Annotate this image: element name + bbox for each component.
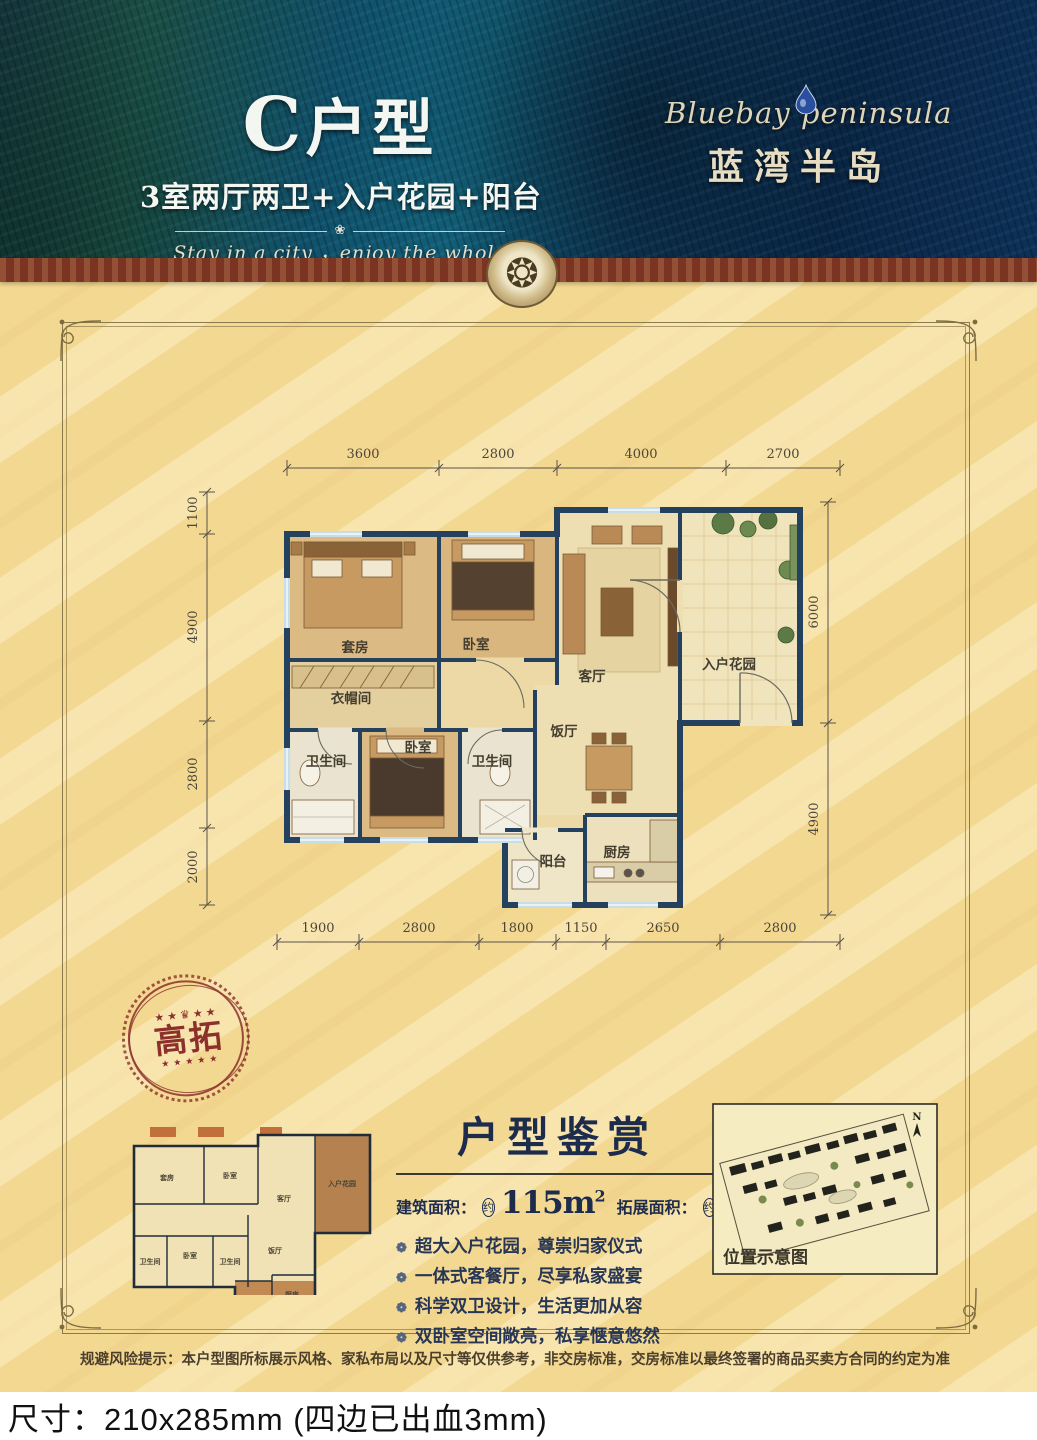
print-size-note: 尺寸：210x285mm (四边已出血3mm) [0,1394,548,1439]
room-label-suite: 套房 [342,639,369,656]
thumb-room-dining: 饭厅 [268,1246,282,1255]
location-map: N 位置示意图 [712,1103,938,1275]
bullet-flower-icon: ❁ [396,1241,407,1256]
corner-flourish-icon [934,315,982,363]
location-map-caption: 位置示意图 [723,1247,808,1268]
room-label-kitchen: 厨房 [604,844,631,861]
floor-plan-thumbnail: 套房 卧室 客厅 入户花园 饭厅 卫生间 卧室 卫生间 阳台 厨房 [82,1083,372,1295]
thumb-room-garden: 入户花园 [327,1179,356,1188]
dim-left-3: 2800 [186,757,201,790]
thumb-room-bedroom2: 卧室 [223,1171,237,1180]
section-title: 户型鉴赏 [396,1104,718,1165]
room-label-wardrobe: 衣帽间 [331,690,372,707]
dim-bottom-1: 1900 [301,921,334,936]
flower-ornament-icon: ❀ [335,226,346,236]
dim-right-1: 6000 [807,595,822,628]
feature-bullet-list: ❁超大入户花园，尊崇归家仪式 ❁一体式客餐厅，尽享私家盛宴 ❁科学双卫设计，生活… [396,1233,718,1353]
room-label-living: 客厅 [578,668,607,685]
build-area-label: 建筑面积： [396,1194,476,1218]
dim-bottom-3: 1800 [500,921,533,936]
room-label-bath2: 卫生间 [472,753,513,770]
thumb-room-living: 客厅 [276,1194,291,1203]
room-label-garden: 入户花园 [702,656,756,673]
thumb-room-suite: 套房 [160,1173,174,1182]
dim-left-4: 2000 [186,850,201,883]
dim-bottom-6: 2800 [763,921,796,936]
thumb-room-bath1: 卫生间 [140,1257,161,1266]
ext-area-label: 拓展面积： [617,1194,697,1218]
page-title: C户型 [140,78,540,168]
corner-flourish-icon [934,1286,982,1334]
section-divider [396,1173,718,1175]
build-area-value: 115m2 [501,1185,605,1221]
thumb-room-bedroom3: 卧室 [183,1251,197,1260]
feature-item: ❁超大入户花园，尊崇归家仪式 [396,1233,718,1263]
svg-text:N: N [912,1112,921,1123]
print-size-bar: 尺寸：210x285mm (四边已出血3mm) [0,1392,1037,1440]
dim-top-1: 3600 [346,447,379,462]
bullet-flower-icon: ❁ [396,1271,407,1286]
dim-bottom-2: 2800 [402,921,435,936]
feature-item: ❁一体式客餐厅，尽享私家盛宴 [396,1263,718,1293]
bullet-flower-icon: ❁ [396,1301,407,1316]
title-divider: ❀ [175,226,505,236]
unit-letter: C [243,82,306,168]
dim-right-2: 4900 [807,802,822,835]
unit-appreciation-section: 户型鉴赏 建筑面积：约115m2 拓展面积：约13m2 ❁超大入户花园，尊崇归家… [396,1104,718,1369]
medallion-ornament-icon: ❂ [486,240,558,308]
dim-bottom-5: 2650 [646,921,679,936]
room-label-bedroom3: 卧室 [405,739,432,756]
dim-top-3: 4000 [624,447,657,462]
dim-bottom-4: 1150 [564,921,597,936]
dim-left-1: 1100 [186,496,201,529]
brand-name-cn: 蓝湾半岛 [665,138,935,190]
room-label-bedroom2: 卧室 [463,636,490,653]
thumb-balcony-highlight [235,1281,315,1295]
room-label-bath1: 卫生间 [306,753,347,770]
dim-top-2: 2800 [481,447,514,462]
thumb-room-bath2: 卫生间 [220,1257,241,1266]
unit-subtitle: 3室两厅两卫+入户花园+阳台 [140,174,540,216]
feature-item: ❁科学双卫设计，生活更加从容 [396,1293,718,1323]
dim-left-2: 4900 [186,610,201,643]
room-label-dining: 饭厅 [550,723,579,740]
corner-flourish-icon [55,315,103,363]
floor-plan: 套房 衣帽间 卧室 客厅 入户花园 饭厅 卫生间 卧室 卫生间 阳台 厨房 36… [180,430,870,975]
risk-disclaimer: 规避风险提示：本户型图所标展示风格、家私布局以及尺寸等仅供参考，非交房标准，交房… [62,1348,968,1369]
approx-circle-icon: 约 [482,1198,495,1217]
dim-top-4: 2700 [766,447,799,462]
bullet-flower-icon: ❁ [396,1331,407,1346]
brand-logo: Bluebay peninsula 蓝湾半岛 [665,96,935,190]
unit-title-block: C户型 3室两厅两卫+入户花园+阳台 ❀ Stay in a city ，enj… [140,78,540,287]
area-info-row: 建筑面积：约115m2 拓展面积：约13m2 [396,1185,718,1221]
water-drop-icon [795,84,817,114]
unit-title-rest: 户型 [305,92,437,165]
room-label-balcony: 阳台 [540,853,567,870]
thumb-room-kitchen: 厨房 [285,1290,299,1295]
